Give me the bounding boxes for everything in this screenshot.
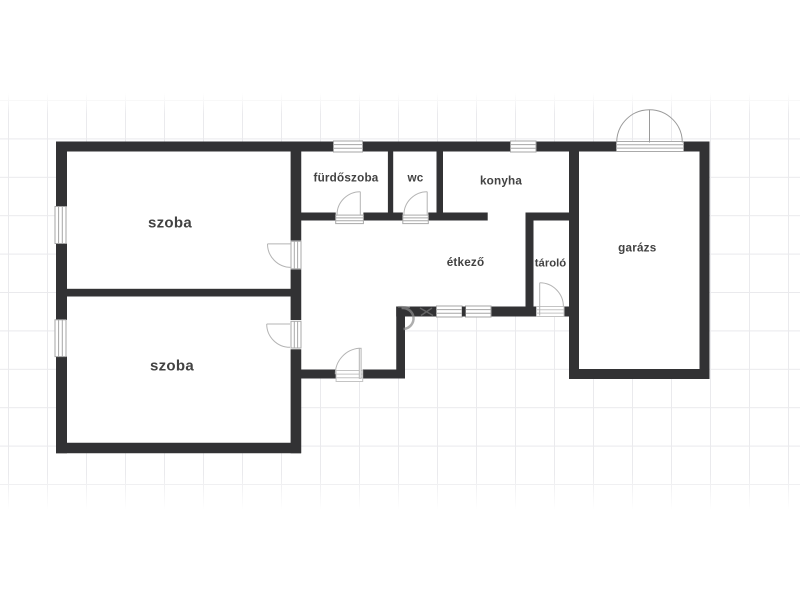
svg-text:konyha: konyha <box>480 175 522 188</box>
svg-text:szoba: szoba <box>150 358 194 375</box>
svg-text:tároló: tároló <box>535 258 566 270</box>
svg-text:szoba: szoba <box>148 215 192 232</box>
svg-text:wc: wc <box>407 172 424 185</box>
svg-text:fürdőszoba: fürdőszoba <box>314 172 379 185</box>
svg-text:étkező: étkező <box>447 256 485 269</box>
svg-text:garázs: garázs <box>618 242 657 255</box>
